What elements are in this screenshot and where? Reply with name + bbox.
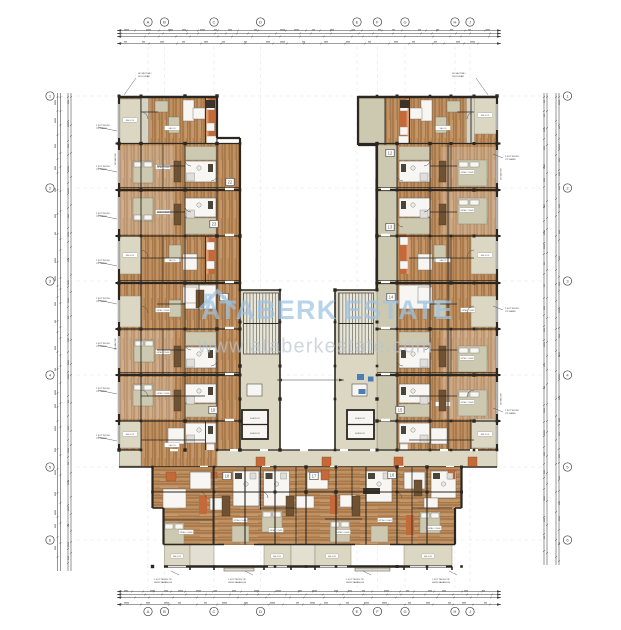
svg-text:YATAK ODASI: YATAK ODASI <box>156 392 170 395</box>
svg-text:A: A <box>147 20 150 25</box>
svg-text:C: C <box>213 609 216 614</box>
svg-text:TIP DAIRE: TIP DAIRE <box>96 168 107 171</box>
svg-text:J: J <box>469 609 471 614</box>
svg-text:ORTAK ODASI: ORTAK ODASI <box>378 519 392 522</box>
svg-text:DIS DUVAR: DIS DUVAR <box>452 75 464 78</box>
svg-text:YATAK ODASI: YATAK ODASI <box>460 357 474 360</box>
svg-text:ESTATE: ESTATE <box>344 295 454 325</box>
svg-text:19: 19 <box>211 408 216 413</box>
svg-text:1.KOTTEDZH: 1.KOTTEDZH <box>505 410 519 412</box>
svg-text:GIRIS SAHANLIGI: GIRIS SAHANLIGI <box>432 581 451 584</box>
svg-text:ASANSOR: ASANSOR <box>250 432 260 435</box>
svg-text:SALON: SALON <box>168 259 176 262</box>
svg-text:BALKON: BALKON <box>424 555 433 558</box>
svg-text:1.KOTTEDZH TIP: 1.KOTTEDZH TIP <box>154 579 172 581</box>
svg-text:ASANSOR: ASANSOR <box>250 417 260 420</box>
svg-text:BALKON: BALKON <box>481 254 490 257</box>
svg-text:2.KOTTEDZH: 2.KOTTEDZH <box>96 435 110 437</box>
svg-text:TIP DAIRE: TIP DAIRE <box>96 262 107 265</box>
svg-text:23: 23 <box>212 222 217 227</box>
svg-text:TIP DAIRE: TIP DAIRE <box>505 310 516 313</box>
svg-text:1.KOTTEDZH TIP: 1.KOTTEDZH TIP <box>432 579 450 581</box>
svg-text:2.KOTTEDZH: 2.KOTTEDZH <box>96 166 110 168</box>
svg-text:2.KOTTEDZH: 2.KOTTEDZH <box>505 308 519 310</box>
svg-text:ISI YALITIM: ISI YALITIM <box>114 153 117 165</box>
svg-text:SALON: SALON <box>168 444 176 447</box>
svg-text:ASANSOR: ASANSOR <box>355 432 365 435</box>
svg-text:2.KOTTEDZH: 2.KOTTEDZH <box>96 298 110 300</box>
svg-text:YATAK ODASI: YATAK ODASI <box>460 209 474 212</box>
svg-text:TIP DAIRE: TIP DAIRE <box>96 127 107 130</box>
svg-text:YATAK ODASI: YATAK ODASI <box>179 531 193 534</box>
svg-text:YATAK ODASI: YATAK ODASI <box>336 531 350 534</box>
svg-text:G: G <box>403 609 406 614</box>
svg-text:22: 22 <box>228 180 233 185</box>
svg-text:15: 15 <box>398 408 403 413</box>
svg-text:ISI YALITIMLI: ISI YALITIMLI <box>138 72 152 75</box>
svg-text:BALKON: BALKON <box>126 433 135 436</box>
svg-text:ATABERK: ATABERK <box>201 295 337 325</box>
svg-text:ISI YALITIM: ISI YALITIM <box>500 168 503 180</box>
svg-text:A: A <box>147 609 150 614</box>
svg-text:TIP DAIRE: TIP DAIRE <box>96 437 107 440</box>
svg-text:YATAK ODASI: YATAK ODASI <box>156 309 170 312</box>
svg-text:www.ataberkestate.com: www.ataberkestate.com <box>197 336 433 358</box>
svg-text:1.KOTTEDZH TIP: 1.KOTTEDZH TIP <box>228 579 246 581</box>
svg-text:12: 12 <box>388 151 393 156</box>
svg-text:YATAK ODASI: YATAK ODASI <box>269 529 283 532</box>
svg-text:2.KOTTEDZH: 2.KOTTEDZH <box>96 125 110 127</box>
svg-text:SALON: SALON <box>439 127 447 130</box>
svg-text:GIRIS SAHANLIGI: GIRIS SAHANLIGI <box>228 581 247 584</box>
svg-text:G: G <box>403 20 406 25</box>
svg-text:DIS DUVAR: DIS DUVAR <box>138 75 150 78</box>
svg-text:2.KOTTEDZH: 2.KOTTEDZH <box>96 343 110 345</box>
svg-text:GIRIS SAHANLIGI: GIRIS SAHANLIGI <box>346 581 365 584</box>
svg-text:ISI YALITIM: ISI YALITIM <box>500 393 503 405</box>
svg-text:TIP DAIRE: TIP DAIRE <box>96 345 107 348</box>
svg-text:B: B <box>163 609 166 614</box>
svg-text:H: H <box>454 20 457 25</box>
svg-text:E: E <box>356 20 359 25</box>
svg-text:3.KOTTEDZH: 3.KOTTEDZH <box>505 156 519 158</box>
svg-text:TIP DAIRE: TIP DAIRE <box>96 300 107 303</box>
svg-text:BALKON: BALKON <box>481 114 490 117</box>
svg-text:B: B <box>163 20 166 25</box>
svg-text:SALON: SALON <box>168 127 176 130</box>
svg-text:17: 17 <box>312 474 317 479</box>
svg-text:BALKON: BALKON <box>481 433 490 436</box>
svg-text:SALON: SALON <box>439 259 447 262</box>
svg-text:1.KOTTEDZH TIP: 1.KOTTEDZH TIP <box>346 579 364 581</box>
svg-text:D: D <box>259 609 262 614</box>
svg-text:TIP DAIRE: TIP DAIRE <box>96 215 107 218</box>
svg-text:TIP DAIRE: TIP DAIRE <box>505 158 516 161</box>
svg-text:H: H <box>454 609 457 614</box>
svg-text:TIP DAIRE: TIP DAIRE <box>96 390 107 393</box>
svg-text:BALKON: BALKON <box>273 555 282 558</box>
svg-text:ISI YALITIMLI: ISI YALITIMLI <box>452 72 466 75</box>
svg-text:YATAK ODASI: YATAK ODASI <box>427 527 441 530</box>
svg-text:GIRIS SAHANLIGI: GIRIS SAHANLIGI <box>154 581 173 584</box>
svg-text:BALKON: BALKON <box>126 119 135 122</box>
svg-text:C: C <box>213 20 216 25</box>
svg-text:E: E <box>356 609 359 614</box>
svg-text:2.KOTTEDZH: 2.KOTTEDZH <box>96 260 110 262</box>
svg-text:TIP DAIRE: TIP DAIRE <box>505 412 516 415</box>
svg-text:YATAK ODASI: YATAK ODASI <box>460 401 474 404</box>
svg-text:2.KOTTEDZH: 2.KOTTEDZH <box>96 388 110 390</box>
svg-text:ASANSOR: ASANSOR <box>355 417 365 420</box>
svg-text:BALKON: BALKON <box>328 555 337 558</box>
svg-text:YATAK ODASI: YATAK ODASI <box>460 171 474 174</box>
svg-text:13: 13 <box>388 225 393 230</box>
svg-text:16: 16 <box>390 473 395 478</box>
svg-text:BALKON: BALKON <box>126 254 135 257</box>
svg-text:D: D <box>259 20 262 25</box>
svg-text:2.KOTTEDZH: 2.KOTTEDZH <box>96 213 110 215</box>
svg-text:18: 18 <box>225 474 230 479</box>
svg-text:BALKON: BALKON <box>173 555 182 558</box>
svg-text:ISI YALITIM: ISI YALITIM <box>114 338 117 350</box>
svg-text:J: J <box>469 20 471 25</box>
